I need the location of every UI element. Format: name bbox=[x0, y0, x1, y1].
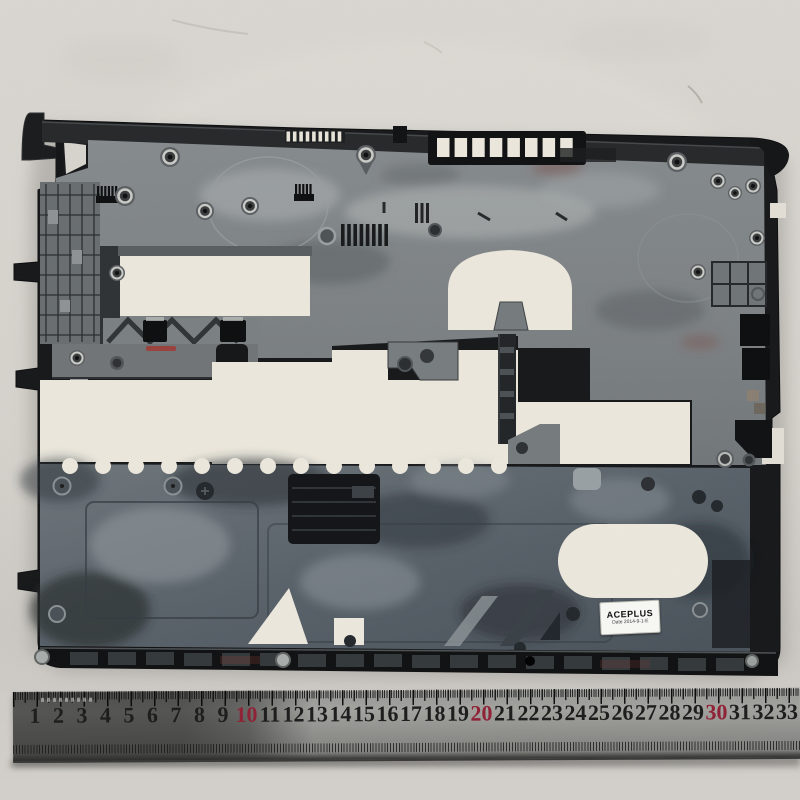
ruler-number: 16 bbox=[376, 703, 398, 725]
ruler-number: 24 bbox=[564, 702, 586, 724]
ruler-number: 27 bbox=[635, 702, 657, 724]
ruler-number: 14 bbox=[329, 703, 351, 725]
ruler-number: 28 bbox=[658, 702, 680, 724]
ruler-number: 30 bbox=[705, 701, 727, 723]
ruler-number: 21 bbox=[494, 702, 516, 724]
ruler-number: 7 bbox=[170, 704, 181, 726]
ruler-number: 25 bbox=[588, 702, 610, 724]
ruler-number: 29 bbox=[682, 701, 704, 723]
ruler-number: 2 bbox=[53, 705, 64, 727]
ruler-etched-text bbox=[41, 698, 93, 702]
ruler-number: 8 bbox=[194, 704, 205, 726]
ruler-number: 32 bbox=[752, 701, 774, 723]
ruler-number: 5 bbox=[123, 704, 134, 726]
label-date-text: Date 2014-9-1-E bbox=[612, 619, 649, 626]
ruler-number: 1 bbox=[29, 705, 40, 727]
photo-scene: ACEPLUS Date 2014-9-1-E 1234567891011121… bbox=[0, 0, 800, 800]
ruler-number: 33 bbox=[776, 701, 798, 723]
ruler-number: 15 bbox=[353, 703, 375, 725]
ruler-number: 31 bbox=[729, 701, 751, 723]
ruler-number: 13 bbox=[306, 703, 328, 725]
case-artwork bbox=[0, 0, 800, 692]
steel-ruler: 1234567891011121314151617181920212223242… bbox=[13, 688, 800, 763]
ruler-number: 10 bbox=[235, 704, 257, 726]
ruler-number: 3 bbox=[76, 705, 87, 727]
ruler-number: 12 bbox=[282, 703, 304, 725]
ruler-number: 9 bbox=[217, 704, 228, 726]
ruler-number: 4 bbox=[100, 704, 111, 726]
ruler-number: 19 bbox=[447, 703, 469, 725]
ruler-number: 11 bbox=[259, 704, 280, 726]
grain-overlay bbox=[0, 0, 800, 692]
ruler-number: 23 bbox=[541, 702, 563, 724]
ruler-number: 18 bbox=[423, 703, 445, 725]
ruler-number: 22 bbox=[517, 702, 539, 724]
ruler-number: 6 bbox=[147, 704, 158, 726]
ruler-number: 17 bbox=[400, 703, 422, 725]
part-info-label: ACEPLUS Date 2014-9-1-E bbox=[599, 600, 660, 636]
ruler-number: 26 bbox=[611, 702, 633, 724]
ruler-number: 20 bbox=[470, 702, 492, 724]
